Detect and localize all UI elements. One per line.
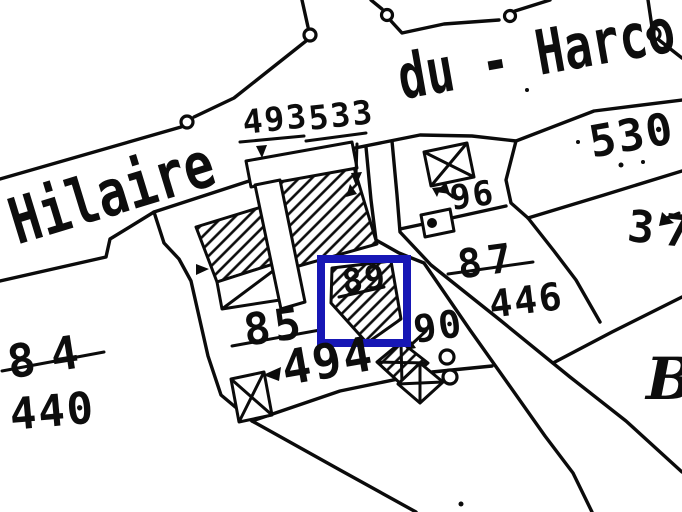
map-speck: [641, 160, 645, 164]
parcel-label-533[interactable]: 533: [307, 95, 376, 135]
fence-line: [371, 0, 382, 9]
parcel-label-493[interactable]: 493: [241, 99, 310, 139]
parcel-label-494[interactable]: 494: [278, 330, 378, 393]
map-speck: [459, 502, 464, 507]
parcel-boundary: [252, 421, 416, 512]
cadastral-map[interactable]: Hilaire du - Harco 493 533 530 37 96 87 …: [0, 0, 682, 512]
survey-marker-icon: [181, 116, 193, 128]
parcel-label-90[interactable]: 90: [411, 304, 466, 349]
map-speck: [576, 140, 580, 144]
parcel-label-440[interactable]: 440: [8, 387, 97, 438]
parcel-label-446[interactable]: 446: [487, 277, 566, 324]
fence-line: [302, 0, 308, 27]
section-label-b: B: [646, 350, 682, 408]
building-dot: [427, 218, 437, 228]
survey-marker-icon: [440, 350, 454, 364]
survey-marker-icon: [304, 29, 316, 41]
arrowhead-icon: [196, 264, 209, 275]
small-building: [421, 209, 454, 237]
parcel-label-87[interactable]: 87: [455, 238, 520, 286]
parcel-label-96[interactable]: 96: [448, 176, 497, 216]
survey-marker-icon: [443, 370, 457, 384]
parcel-label-37[interactable]: 37: [625, 205, 682, 256]
survey-marker-icon: [382, 10, 393, 21]
parcel-label-84[interactable]: 84: [4, 326, 98, 385]
fence-line: [515, 0, 550, 11]
label-leader: [356, 144, 357, 175]
parcel-boundary: [506, 141, 528, 218]
parcel-label-89[interactable]: 89: [340, 260, 389, 300]
